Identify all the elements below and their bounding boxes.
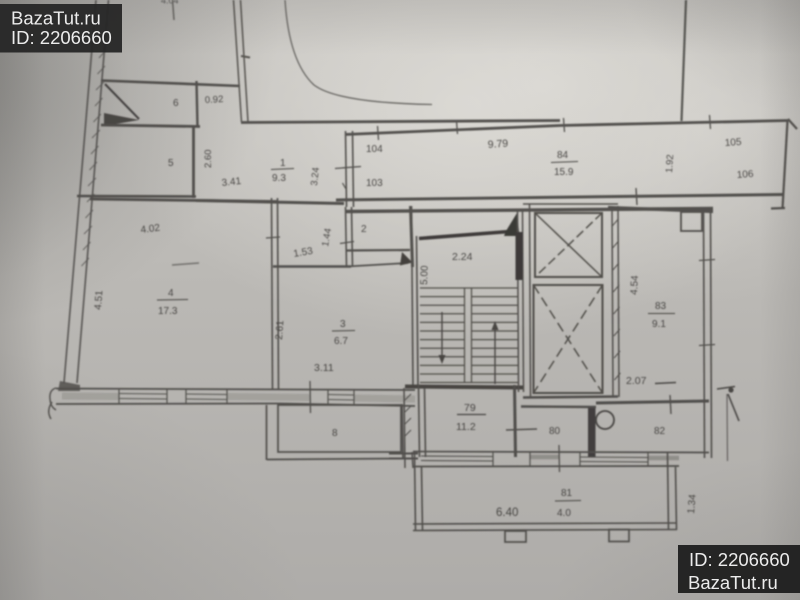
svg-text:5: 5	[168, 158, 174, 169]
svg-text:8: 8	[332, 428, 338, 439]
svg-text:6.7: 6.7	[334, 336, 348, 347]
svg-text:79: 79	[464, 402, 476, 414]
svg-text:17.3: 17.3	[158, 306, 178, 317]
svg-text:9.1: 9.1	[652, 319, 666, 330]
svg-text:6: 6	[173, 98, 179, 109]
svg-text:1.92: 1.92	[664, 154, 676, 173]
svg-text:2.60: 2.60	[203, 150, 214, 169]
svg-text:106: 106	[736, 169, 754, 181]
svg-text:BazaTut.ru: BazaTut.ru	[11, 8, 101, 29]
svg-text:3: 3	[340, 319, 346, 330]
svg-text:9.79: 9.79	[487, 138, 508, 151]
svg-text:4: 4	[168, 288, 174, 299]
svg-text:2.61: 2.61	[274, 320, 286, 341]
svg-text:4.51: 4.51	[93, 290, 105, 311]
svg-text:103: 103	[366, 178, 383, 189]
svg-text:83: 83	[655, 301, 667, 312]
svg-text:ID: 2206660: ID: 2206660	[689, 549, 790, 570]
svg-text:80: 80	[549, 426, 561, 437]
svg-text:4.54: 4.54	[629, 275, 641, 295]
svg-text:82: 82	[654, 426, 666, 437]
svg-text:11.2: 11.2	[456, 421, 476, 433]
svg-text:BazaTut.ru: BazaTut.ru	[688, 572, 778, 593]
svg-text:3.11: 3.11	[314, 362, 334, 374]
svg-text:104: 104	[366, 144, 383, 155]
svg-text:4.04: 4.04	[161, 0, 179, 6]
svg-text:1.34: 1.34	[686, 493, 699, 514]
svg-text:15.9: 15.9	[554, 167, 574, 178]
svg-text:4.0: 4.0	[557, 508, 571, 519]
svg-text:0.92: 0.92	[205, 94, 224, 106]
svg-text:5.00: 5.00	[419, 265, 431, 285]
svg-text:ID: 2206660: ID: 2206660	[11, 27, 112, 48]
svg-text:3.24: 3.24	[309, 167, 322, 187]
svg-text:2.24: 2.24	[452, 251, 473, 263]
svg-text:9.3: 9.3	[272, 173, 286, 184]
svg-text:6.40: 6.40	[496, 507, 518, 519]
svg-text:3.41: 3.41	[221, 176, 242, 189]
svg-text:2: 2	[361, 224, 367, 235]
svg-text:105: 105	[724, 137, 742, 149]
svg-text:1: 1	[280, 158, 286, 169]
svg-text:81: 81	[561, 488, 573, 499]
svg-text:2.07: 2.07	[626, 375, 647, 387]
svg-text:84: 84	[557, 150, 569, 161]
